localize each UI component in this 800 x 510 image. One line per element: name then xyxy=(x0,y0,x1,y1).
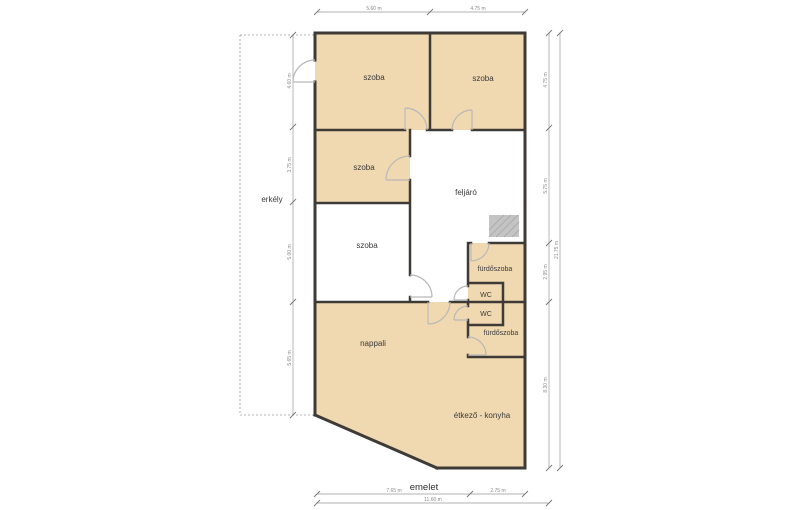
dim-bottom-2: 2.75 m xyxy=(490,488,505,494)
dim-left-4: 5.65 m xyxy=(287,350,293,365)
dim-bottom-total: 11.60 m xyxy=(424,497,442,503)
room-label-bedroom-top-right: szoba xyxy=(472,74,494,83)
dim-left-1: 4.60 m xyxy=(287,73,293,88)
room-label-bedroom-top-left: szoba xyxy=(363,73,385,82)
dim-right-4: 8.30 m xyxy=(543,377,549,392)
dim-left-3: 5.00 m xyxy=(287,244,293,259)
dim-right-total: 21.75 m xyxy=(554,241,560,259)
room-label-bathroom-lower: fürdőszoba xyxy=(484,330,519,337)
room-label-bedroom-middle: szoba xyxy=(353,163,375,172)
balcony-outline xyxy=(240,35,315,415)
floor-plan-svg: szoba szoba szoba szoba feljáró erkély f… xyxy=(0,0,800,510)
dim-right-2: 5.75 m xyxy=(543,178,549,193)
dim-top-2: 4.75 m xyxy=(470,6,485,12)
room-label-wc-lower: WC xyxy=(480,311,492,318)
room-label-bathroom-upper: fürdőszoba xyxy=(478,266,513,273)
room-label-balcony: erkély xyxy=(261,195,282,204)
stairs-hatch xyxy=(489,215,519,237)
room-label-wc-upper: WC xyxy=(480,292,492,299)
floor-title: emelet xyxy=(410,482,439,493)
dim-right-3: 2.95 m xyxy=(543,264,549,279)
room-label-landing: feljáró xyxy=(455,188,477,197)
door-balcony xyxy=(293,60,315,82)
dim-left-2: 3.75 m xyxy=(287,157,293,172)
dim-bottom-1: 7.65 m xyxy=(386,488,401,494)
floor-plan-page: szoba szoba szoba szoba feljáró erkély f… xyxy=(0,0,800,510)
dim-top-1: 5.60 m xyxy=(366,6,381,12)
dim-right-1: 4.75 m xyxy=(543,72,549,87)
room-label-dining-kitchen: étkező - konyha xyxy=(454,411,511,420)
room-label-living-room: nappali xyxy=(360,339,386,348)
room-fills xyxy=(315,33,525,468)
room-label-bedroom-lower: szoba xyxy=(356,241,378,250)
